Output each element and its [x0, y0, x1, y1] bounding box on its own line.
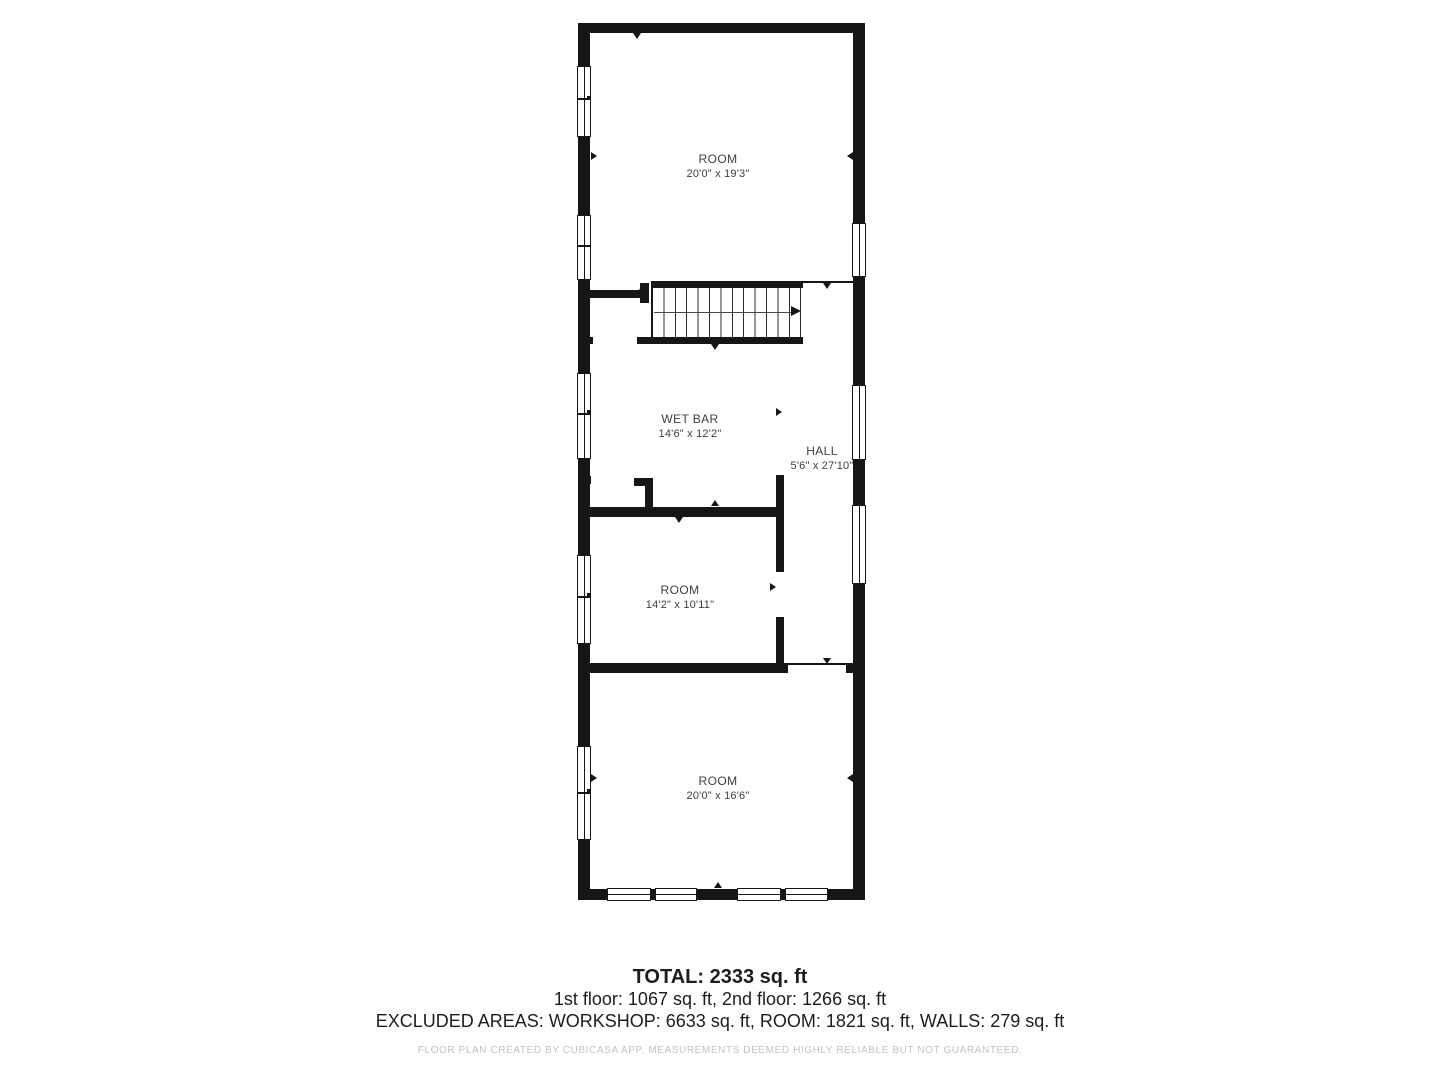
door-swing-tick-icon: [591, 152, 597, 160]
window-mullion: [608, 894, 650, 895]
stairs-top-wall: [651, 281, 803, 288]
window: [852, 385, 866, 460]
window-mullion: [859, 224, 860, 276]
door-swing-tick-icon: [847, 152, 853, 160]
wall-right-segment: [853, 460, 865, 505]
window: [577, 215, 591, 280]
room-name: HALL: [791, 444, 854, 458]
window: [577, 555, 591, 644]
wall-left-segment: [578, 33, 590, 66]
window-mullion: [584, 67, 585, 136]
stairs-treads: [651, 288, 803, 337]
wall-top: [578, 23, 865, 33]
window: [852, 505, 866, 584]
closet-wall-stub: [582, 476, 591, 484]
window: [607, 888, 651, 901]
room-dimensions: 14'6" x 12'2": [659, 428, 722, 440]
window-mullion: [859, 386, 860, 459]
window-mullion: [584, 556, 585, 643]
door-swing-tick-icon: [823, 658, 831, 664]
wall-right-segment: [853, 33, 865, 223]
stairs-direction-line: [654, 312, 792, 313]
door-swing-tick-icon: [591, 774, 597, 782]
door-swing-tick-icon: [675, 517, 683, 523]
room-name: ROOM: [687, 774, 750, 788]
door-swing-tick-icon: [633, 33, 641, 39]
wall-right-segment: [853, 277, 865, 385]
door-swing-tick-icon: [847, 774, 853, 782]
window-divider-marker: [587, 593, 591, 597]
room-dimensions: 20'0" x 16'6": [687, 790, 750, 802]
window: [577, 66, 591, 137]
door-swing-tick-icon: [776, 408, 782, 416]
room-label-wet-bar: WET BAR 14'6" x 12'2": [659, 412, 722, 440]
summary-excluded-areas: EXCLUDED AREAS: WORKSHOP: 6633 sq. ft, R…: [0, 1011, 1440, 1032]
window-divider: [577, 245, 591, 247]
room-wall-stub: [846, 663, 865, 673]
wall-left-segment: [578, 840, 590, 889]
window-divider-marker: [587, 410, 591, 414]
window: [737, 888, 781, 901]
window: [655, 888, 697, 901]
room-label-middle: ROOM 14'2" x 10'11": [646, 583, 714, 611]
wall-stub: [578, 337, 593, 344]
stairs-direction-arrow-icon: [791, 306, 801, 316]
door-swing-tick-icon: [711, 500, 719, 506]
room-wall-top: [578, 507, 783, 517]
room-name: ROOM: [646, 583, 714, 597]
footer-disclaimer: FLOOR PLAN CREATED BY CUBICASA APP. MEAS…: [0, 1045, 1440, 1056]
floor-plan-page: ROOM 20'0" x 19'3" WET BAR 14'6" x 12'2"…: [0, 0, 1440, 1080]
room-dimensions: 5'6" x 27'10": [791, 460, 854, 472]
room-dimensions: 14'2" x 10'11": [646, 599, 714, 611]
door-swing-tick-icon: [714, 882, 722, 888]
wall-left-segment: [578, 644, 590, 746]
room-wall-bottom: [578, 663, 788, 673]
room-label-top: ROOM 20'0" x 19'3": [687, 152, 750, 180]
door-swing-tick-icon: [711, 344, 719, 350]
wall-left-segment: [578, 137, 590, 215]
stairs-bottom-wall: [637, 337, 803, 344]
room-name: ROOM: [687, 152, 750, 166]
room-label-hall: HALL 5'6" x 27'10": [791, 444, 854, 472]
window-mullion: [786, 894, 827, 895]
window-mullion: [584, 374, 585, 458]
window-mullion: [738, 894, 780, 895]
window: [577, 373, 591, 459]
summary-floors: 1st floor: 1067 sq. ft, 2nd floor: 1266 …: [0, 989, 1440, 1010]
window: [785, 888, 828, 901]
window-divider-marker: [587, 789, 591, 793]
window: [577, 746, 591, 840]
door-opening-line: [788, 663, 846, 665]
window-mullion: [859, 506, 860, 583]
summary-total: TOTAL: 2333 sq. ft: [0, 966, 1440, 989]
window: [852, 223, 866, 277]
room-dimensions: 20'0" x 19'3": [687, 168, 750, 180]
window-mullion: [656, 894, 696, 895]
window-mullion: [584, 216, 585, 279]
window-divider-marker: [587, 96, 591, 100]
door-swing-tick-icon: [639, 284, 647, 290]
door-swing-tick-icon: [823, 283, 831, 289]
room-name: WET BAR: [659, 412, 722, 426]
room-label-bottom: ROOM 20'0" x 16'6": [687, 774, 750, 802]
door-swing-tick-icon: [770, 583, 776, 591]
wall-stub: [578, 290, 642, 298]
room-wall-right: [776, 475, 784, 572]
wall-right-segment: [853, 584, 865, 889]
